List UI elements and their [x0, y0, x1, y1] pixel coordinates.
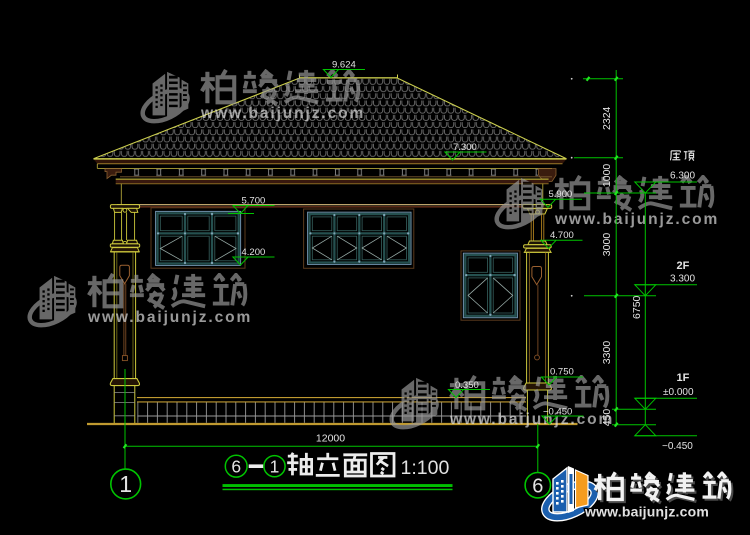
svg-text:4.700: 4.700 [550, 230, 574, 241]
svg-text:6: 6 [532, 475, 543, 497]
svg-text:±0.000: ±0.000 [663, 387, 694, 398]
svg-text:5.900: 5.900 [549, 189, 573, 200]
svg-text:450: 450 [601, 409, 613, 427]
svg-text:6: 6 [231, 457, 241, 477]
svg-text:3.300: 3.300 [670, 274, 695, 285]
svg-text:12000: 12000 [316, 432, 345, 444]
svg-text:0.750: 0.750 [550, 367, 574, 378]
svg-text:3000: 3000 [601, 233, 613, 257]
svg-text:1000: 1000 [601, 164, 613, 188]
svg-text:1F: 1F [677, 372, 690, 384]
svg-text:1: 1 [119, 471, 132, 497]
svg-text:−0.450: −0.450 [662, 441, 693, 452]
svg-text:3300: 3300 [601, 341, 613, 365]
svg-text:7.300: 7.300 [453, 142, 477, 153]
svg-text:6.300: 6.300 [670, 171, 695, 182]
svg-text:−0.450: −0.450 [543, 407, 572, 418]
svg-text:2324: 2324 [601, 106, 613, 130]
svg-text:1:100: 1:100 [401, 457, 450, 479]
svg-text:9.624: 9.624 [332, 60, 356, 71]
svg-text:6750: 6750 [631, 295, 643, 319]
svg-text:0.350: 0.350 [455, 380, 479, 391]
svg-text:www.baijunjz.com: www.baijunjz.com [584, 504, 709, 520]
svg-text:1: 1 [270, 457, 280, 477]
svg-text:5.700: 5.700 [242, 195, 266, 206]
svg-text:4.200: 4.200 [242, 247, 266, 258]
svg-text:2F: 2F [677, 260, 690, 272]
